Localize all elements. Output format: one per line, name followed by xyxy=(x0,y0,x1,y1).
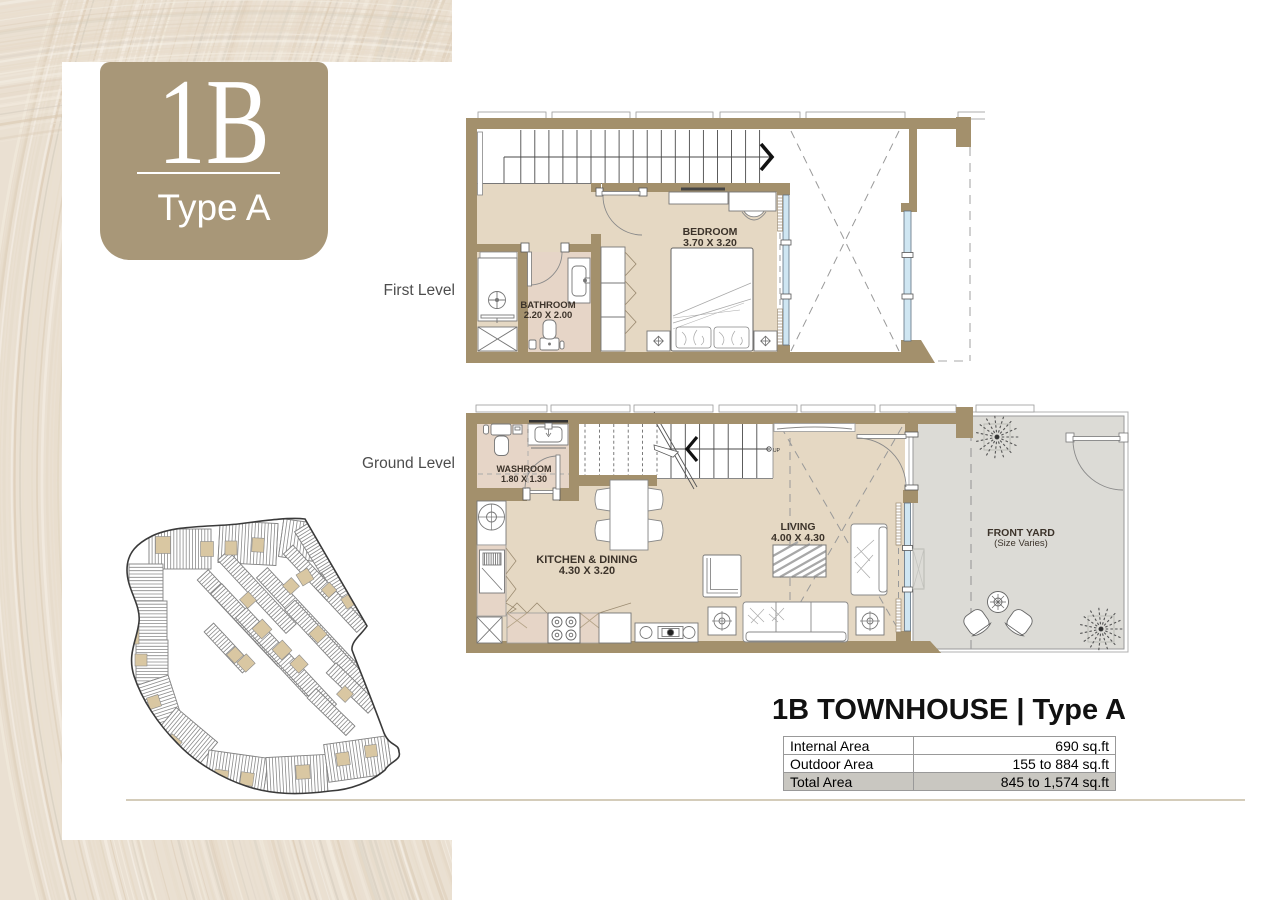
svg-text:3.70 X 3.20: 3.70 X 3.20 xyxy=(683,237,737,249)
svg-text:UP: UP xyxy=(773,448,781,454)
svg-text:1.80 X 1.30: 1.80 X 1.30 xyxy=(501,474,547,484)
svg-text:4.00 X 4.30: 4.00 X 4.30 xyxy=(771,532,825,544)
svg-text:2.20 X 2.00: 2.20 X 2.00 xyxy=(524,310,573,321)
svg-text:(Size Varies): (Size Varies) xyxy=(994,538,1048,549)
svg-text:4.30 X 3.20: 4.30 X 3.20 xyxy=(559,565,615,577)
svg-text:WASHROOM: WASHROOM xyxy=(497,464,552,474)
